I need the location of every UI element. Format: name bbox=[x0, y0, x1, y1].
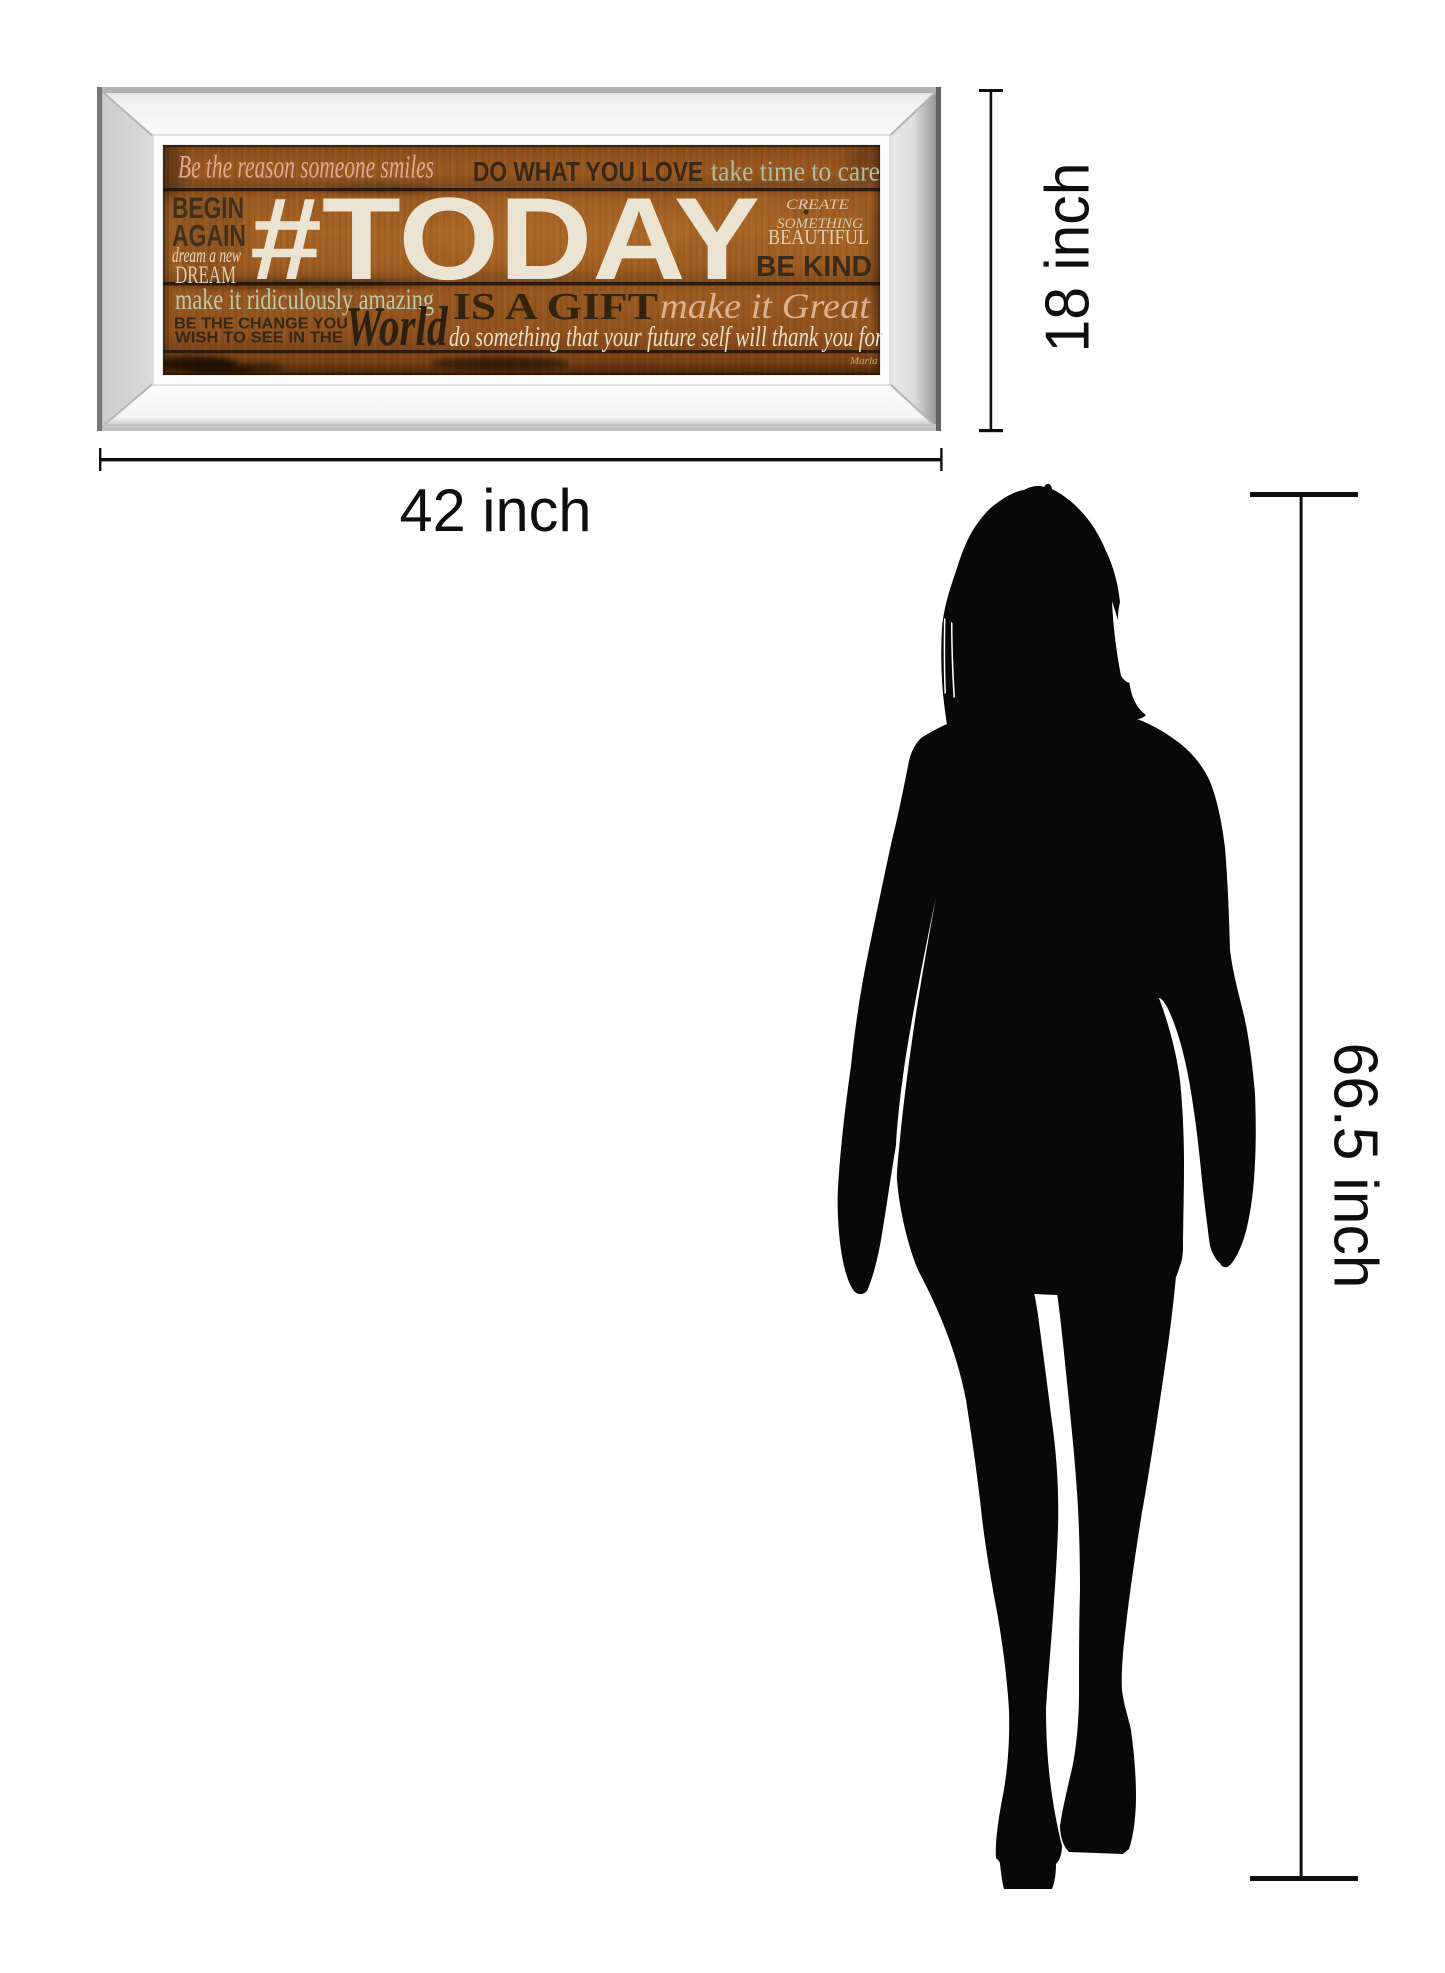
svg-text:World: World bbox=[346, 296, 449, 358]
svg-text:do something that your future: do something that your future self will … bbox=[449, 321, 884, 353]
svg-text:18 inch: 18 inch bbox=[1034, 163, 1103, 353]
svg-text:BE KIND: BE KIND bbox=[756, 251, 872, 283]
svg-text:BEAUTIFUL: BEAUTIFUL bbox=[768, 225, 869, 249]
svg-text:66.5 inch: 66.5 inch bbox=[1321, 1043, 1390, 1289]
svg-text:WISH TO SEE IN THE: WISH TO SEE IN THE bbox=[175, 330, 343, 347]
svg-text:42 inch: 42 inch bbox=[400, 477, 592, 544]
svg-text:Marla: Marla bbox=[849, 355, 878, 367]
svg-text:make it Great: make it Great bbox=[660, 286, 871, 326]
svg-text:CREATE: CREATE bbox=[786, 197, 849, 213]
